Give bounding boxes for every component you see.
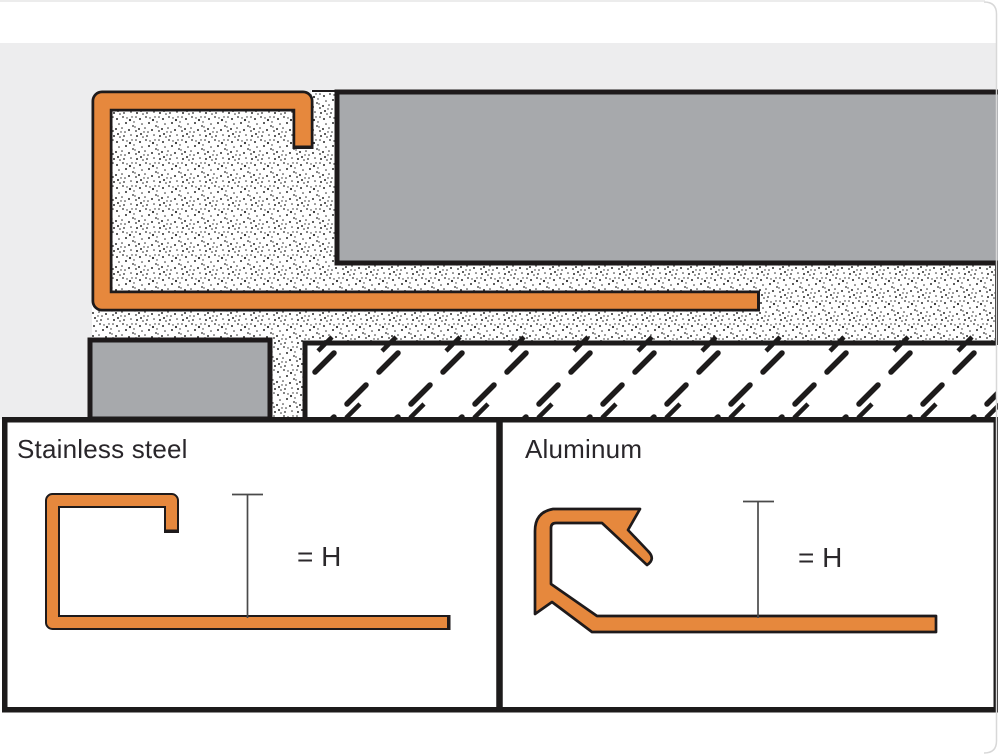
mortar-perimeter-joint [269,340,305,420]
tile-edge-profile-diagram [0,0,1004,756]
height-label-left: = H [297,543,341,571]
height-label-right: = H [798,544,842,572]
panel-label-stainless-steel: Stainless steel [17,436,188,462]
substrate-hatch-marks [305,343,997,419]
page-right-margin [998,0,1004,756]
base-block [90,340,270,419]
tile-block [337,92,1002,263]
panel-label-aluminum: Aluminum [525,436,642,462]
substrate-hatch [305,337,1000,419]
mortar-joint-top [311,90,337,120]
